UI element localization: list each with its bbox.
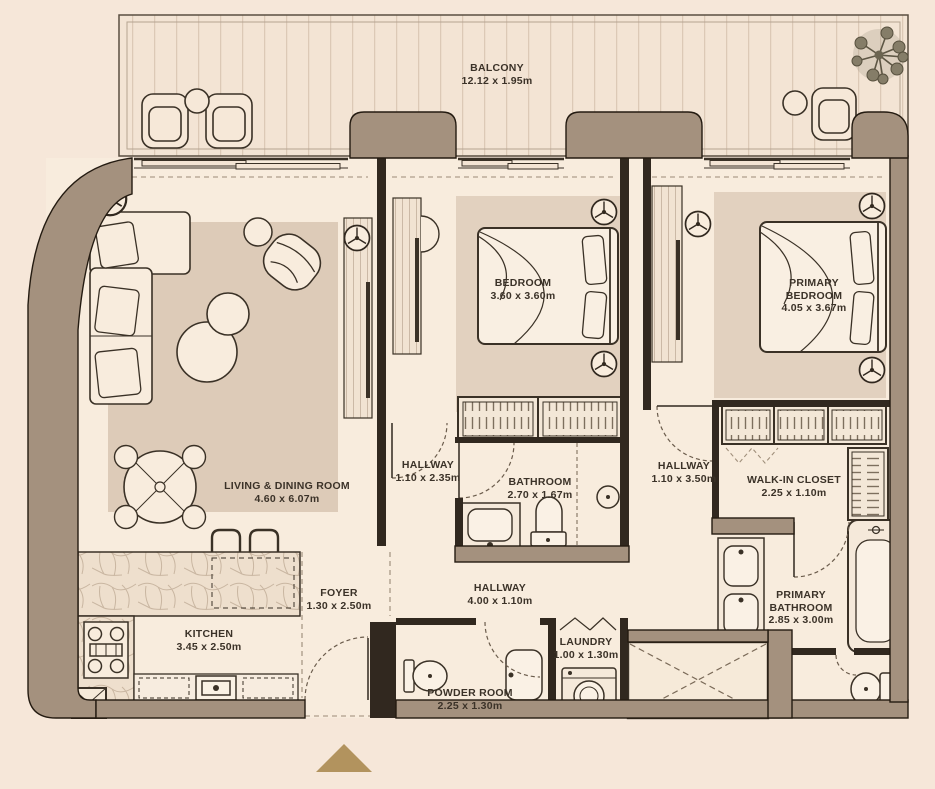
laundry-name: LAUNDRY [554,636,619,649]
hallway-bedroom-dims: 1.10 x 2.35m [396,472,461,485]
wall-bathroom-top [455,437,625,443]
wall-powder-top-left [396,618,476,625]
ceiling-fixture-icon [860,358,885,383]
balcony-armchair-right [812,88,856,140]
entry-threshold [305,700,371,718]
wall-shaft-top [628,630,768,642]
dining-chair [115,446,138,469]
hallway-main-name: HALLWAY [468,582,533,595]
room-label-bathroom: BATHROOM 2.70 x 1.67m [508,476,573,501]
ceiling-fixture-icon [592,200,617,225]
ceiling-fixture-icon [686,212,711,237]
wall-shaft-column [768,630,792,718]
balcony-table-right [783,91,807,115]
tv-bedroom [415,238,419,342]
primary-bathroom-name: PRIMARY BATHROOM [761,589,841,614]
bedroom-wardrobe [458,397,622,441]
room-label-primary-bedroom: PRIMARY BEDROOM 4.05 x 3.67m [778,277,850,315]
wall-corner-top-right [852,112,908,158]
room-label-hallway-primary: HALLWAY 1.10 x 3.50m [652,460,717,485]
wall-bedroom-hall [620,158,629,562]
balcony-doors [134,159,850,169]
living-name: LIVING & DINING ROOM [224,480,350,493]
wall-block-top-b [566,112,702,158]
balcony-name: BALCONY [462,62,533,75]
walk-in-closet-dims: 2.25 x 1.10m [747,487,841,500]
wall-exterior-right [890,156,908,702]
bathroom-dims: 2.70 x 1.67m [508,489,573,502]
laundry-dims: 1.00 x 1.30m [554,649,619,662]
room-label-foyer: FOYER 1.30 x 2.50m [307,587,372,612]
hallway-primary-name: HALLWAY [652,460,717,473]
wall-exterior-bottom-left [96,700,305,718]
hallway-primary-dims: 1.10 x 3.50m [652,473,717,486]
balcony-armchair-left-2 [206,94,252,148]
sofa-pillow-2 [94,286,139,337]
bathroom-sink [468,509,512,541]
room-label-bedroom: BEDROOM 3.60 x 3.60m [491,277,556,302]
kitchen-sink [196,676,236,700]
powder-room-dims: 2.25 x 1.30m [427,700,513,713]
room-label-primary-bathroom: PRIMARY BATHROOM 2.85 x 3.00m [761,589,841,627]
kitchen-dims: 3.45 x 2.50m [177,641,242,654]
primary-bed-pillow [850,231,874,285]
dining-set [115,446,206,529]
bedroom-name: BEDROOM [491,277,556,290]
hallway-bedroom-name: HALLWAY [396,459,461,472]
kitchen-peninsula-counter [78,552,300,616]
primary-bedroom-dims: 4.05 x 3.67m [778,302,850,315]
wall-block-top-a [350,112,456,158]
wall-closet-top [712,400,890,407]
foyer-dims: 1.30 x 2.50m [307,600,372,613]
wall-primary-left [643,158,651,410]
floor-plan-drawing [0,0,935,789]
primary-bedroom-name: PRIMARY BEDROOM [778,277,850,302]
kitchen-fixtures [78,530,300,702]
bed-pillow [582,291,607,339]
dining-chair [183,506,206,529]
room-label-hallway-bedroom: HALLWAY 1.10 x 2.35m [396,459,461,484]
room-label-hallway-main: HALLWAY 4.00 x 1.10m [468,582,533,607]
entrance-arrow-icon [316,744,372,772]
ceiling-fixture-icon [345,226,370,251]
kitchen-stove [84,622,128,678]
sofa-pillow-1 [95,221,139,268]
room-label-powder-room: POWDER ROOM 2.25 x 1.30m [427,687,513,712]
wall-toilet-room-a [792,648,836,655]
bathroom-name: BATHROOM [508,476,573,489]
room-label-living: LIVING & DINING ROOM 4.60 x 6.07m [224,480,350,505]
bed-pillow [582,235,607,285]
room-label-kitchen: KITCHEN 3.45 x 2.50m [177,628,242,653]
wall-bathroom-bottom [455,546,629,562]
wall-toilet-room-b [854,648,890,655]
balcony-armchair-left-1 [142,94,188,148]
ceiling-fixture-icon [592,352,617,377]
primary-bed-pillow [850,291,874,345]
tv-living [366,282,370,398]
coffee-table-small [207,293,249,335]
room-label-balcony: BALCONY 12.12 x 1.95m [462,62,533,87]
wall-closet-bottom [712,518,794,534]
room-label-laundry: LAUNDRY 1.00 x 1.30m [554,636,619,661]
primary-bathroom-dims: 2.85 x 3.00m [761,614,841,627]
sofa-pillow-3 [95,348,142,398]
balcony-dims: 12.12 x 1.95m [462,75,533,88]
powder-room-name: POWDER ROOM [427,687,513,700]
dining-chair [183,446,206,469]
dining-chair [115,506,138,529]
bedroom-dims: 3.60 x 3.60m [491,290,556,303]
kitchen-name: KITCHEN [177,628,242,641]
tv-primary [676,240,680,340]
foyer-name: FOYER [307,587,372,600]
wall-bathroom-left [455,498,463,553]
side-table [244,218,272,246]
wall-entry-block [370,622,396,718]
floor-plan: BALCONY 12.12 x 1.95m LIVING & DINING RO… [0,0,935,789]
balcony-table-left [185,89,209,113]
living-dims: 4.60 x 6.07m [224,493,350,506]
ceiling-fixture-icon [860,194,885,219]
room-label-walk-in-closet: WALK-IN CLOSET 2.25 x 1.10m [747,474,841,499]
walk-in-closet-name: WALK-IN CLOSET [747,474,841,487]
hallway-main-dims: 4.00 x 1.10m [468,595,533,608]
wall-living-bedroom [377,158,386,546]
